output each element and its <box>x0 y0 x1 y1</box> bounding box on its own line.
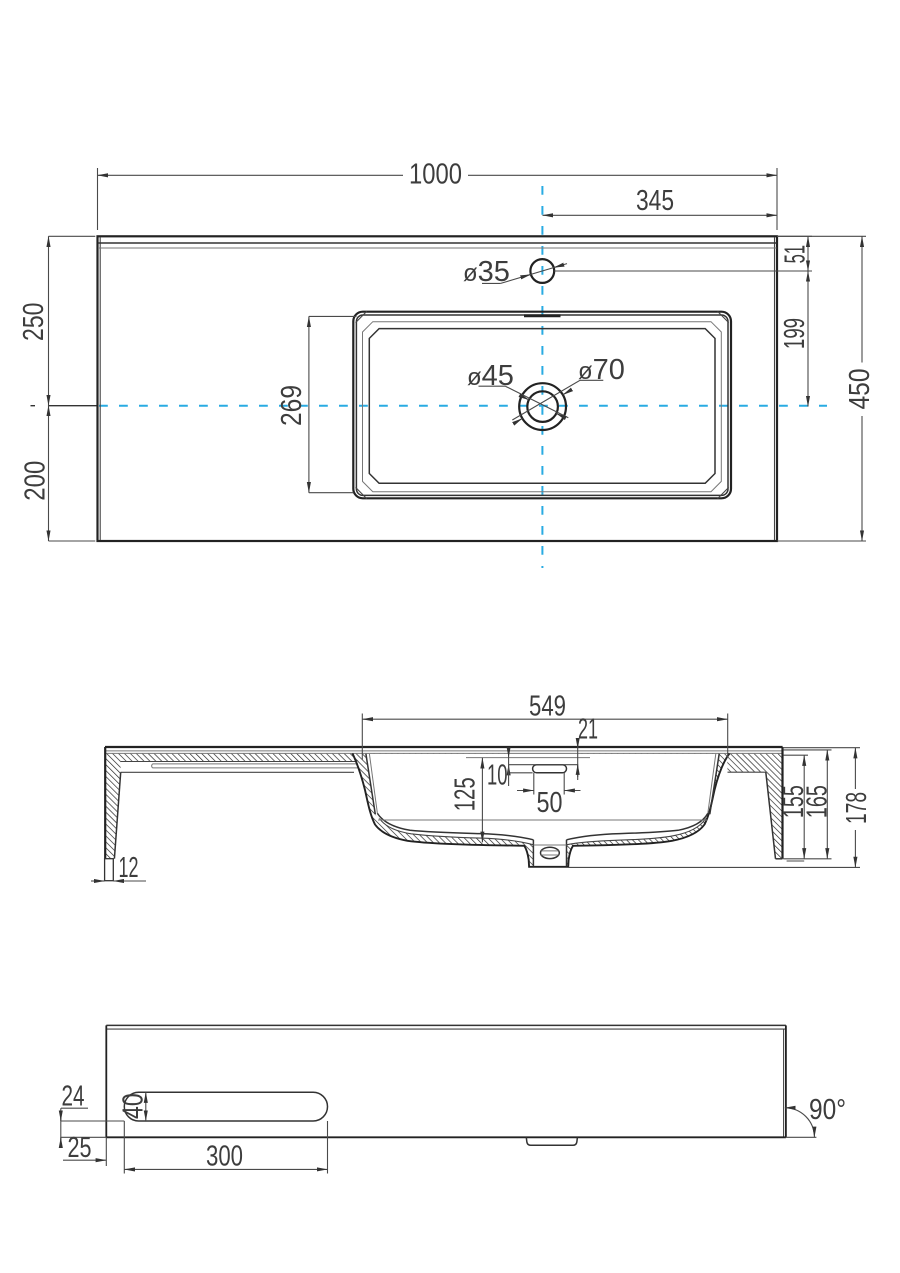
svg-text:200: 200 <box>20 461 52 501</box>
svg-text:21: 21 <box>578 714 598 746</box>
svg-text:345: 345 <box>636 185 674 217</box>
svg-text:250: 250 <box>18 303 50 342</box>
svg-text:90°: 90° <box>809 1094 846 1126</box>
svg-text:178: 178 <box>841 792 873 824</box>
svg-text:40: 40 <box>118 1093 150 1119</box>
svg-text:50: 50 <box>537 787 563 819</box>
svg-text:549: 549 <box>529 691 566 723</box>
svg-text:1000: 1000 <box>409 159 462 191</box>
svg-text:300: 300 <box>206 1141 243 1173</box>
svg-text:165: 165 <box>801 785 833 818</box>
svg-text:450: 450 <box>844 369 876 410</box>
svg-text:25: 25 <box>68 1132 92 1164</box>
svg-text:125: 125 <box>450 777 482 811</box>
svg-text:51: 51 <box>779 245 811 264</box>
svg-text:ø45: ø45 <box>467 360 514 392</box>
svg-text:199: 199 <box>779 318 811 349</box>
svg-text:10: 10 <box>487 760 508 792</box>
svg-text:12: 12 <box>119 852 139 884</box>
svg-text:269: 269 <box>276 385 308 426</box>
svg-text:ø35: ø35 <box>463 256 510 288</box>
svg-text:ø70: ø70 <box>578 354 625 386</box>
